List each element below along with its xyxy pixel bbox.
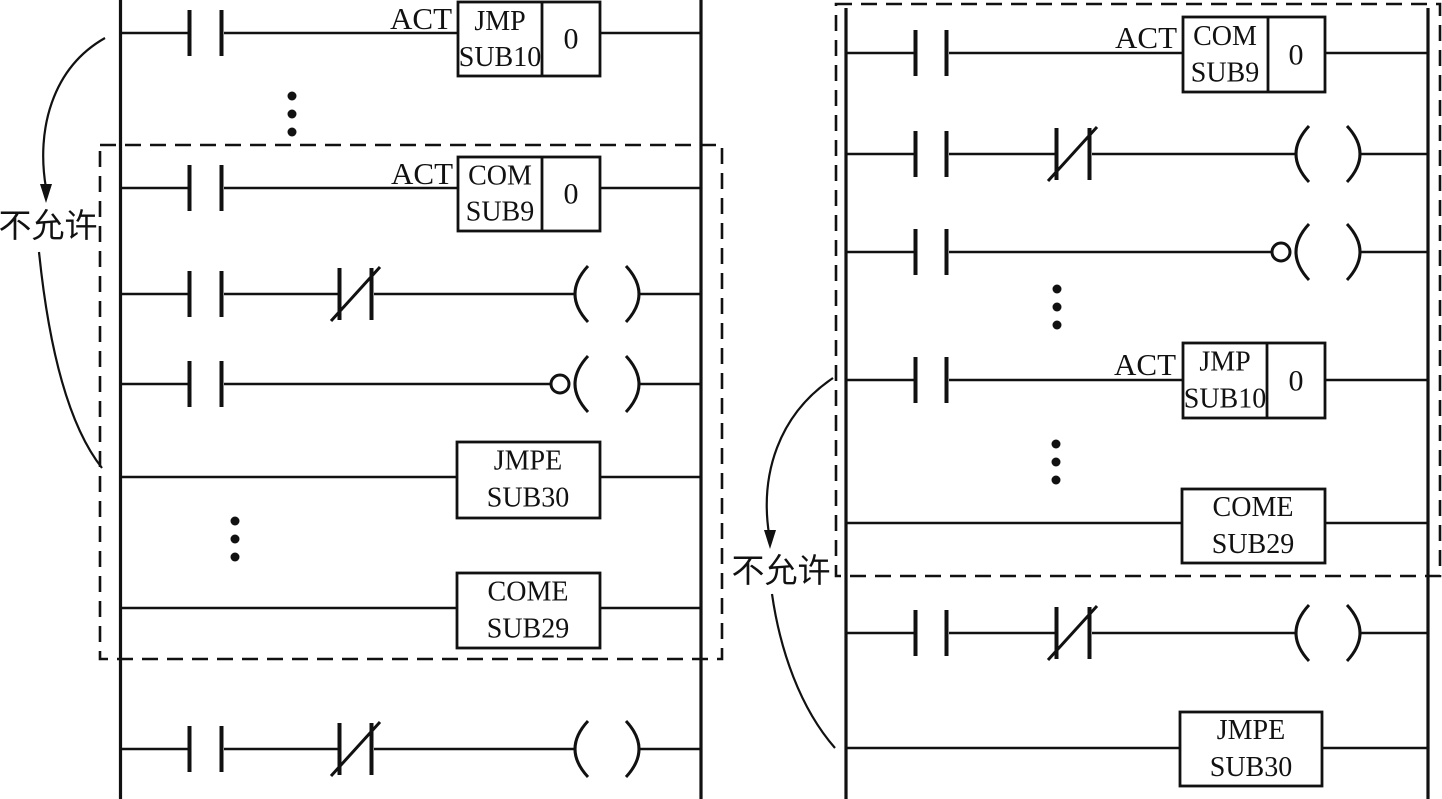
dot [1053, 321, 1062, 330]
dot [288, 110, 297, 119]
instruction-operand: SUB29 [487, 614, 569, 645]
instruction-operand: SUB9 [466, 197, 534, 228]
not-allowed-label: 不允许 [732, 553, 831, 590]
instruction-value: 0 [564, 178, 579, 211]
instruction-mnemonic: COME [488, 577, 569, 608]
coil-icon [626, 266, 639, 322]
dot [288, 128, 297, 137]
rung-come-sub29: COME SUB29 [120, 573, 701, 648]
instruction-value: 0 [564, 23, 579, 56]
instruction-value: 0 [1289, 39, 1304, 72]
dot [1052, 440, 1061, 449]
instruction-mnemonic: JMP [1199, 347, 1250, 378]
rung-jmpe-sub30: JMPE SUB30 [120, 442, 701, 518]
instruction-operand: SUB30 [1210, 752, 1292, 783]
right-ladder: ACT COM SUB9 0 [732, 4, 1441, 799]
ladder-diagram: ACT JMP SUB10 0 ACT COM SUB9 0 [0, 0, 1442, 799]
dot [1053, 285, 1062, 294]
dot [1052, 458, 1061, 467]
not-allowed-arrow-curve [43, 38, 105, 188]
dot [1053, 303, 1062, 312]
dot [1052, 476, 1061, 485]
rung-come-sub29: COME SUB29 [846, 489, 1428, 563]
dot [231, 535, 240, 544]
coil-icon [575, 721, 588, 777]
rung-output-coil-2 [846, 605, 1428, 661]
instruction-operand: SUB30 [487, 483, 569, 514]
instruction-mnemonic: JMPE [494, 446, 562, 477]
rung-jmpe-sub30: JMPE SUB30 [846, 712, 1428, 786]
dot [231, 553, 240, 562]
instruction-mnemonic: COM [1193, 21, 1257, 52]
dot [231, 517, 240, 526]
ellipsis-dots [231, 517, 240, 562]
left-ladder: ACT JMP SUB10 0 ACT COM SUB9 0 [0, 0, 722, 799]
rung-com-sub9: ACT COM SUB9 0 [120, 156, 701, 231]
not-allowed-label: 不允许 [0, 208, 98, 245]
coil-icon [1296, 126, 1309, 182]
ellipsis-dots [1053, 285, 1062, 330]
act-label: ACT [390, 1, 452, 36]
rung-jmp-sub10: ACT JMP SUB10 0 [846, 343, 1428, 418]
coil-icon [575, 266, 588, 322]
instruction-mnemonic: COME [1213, 492, 1294, 523]
arrowhead-icon [40, 184, 52, 203]
coil-icon [1296, 224, 1309, 280]
coil-icon [626, 356, 639, 412]
instruction-mnemonic: JMP [474, 6, 525, 37]
instruction-mnemonic: COM [468, 161, 532, 192]
ellipsis-dots [1052, 440, 1061, 485]
dot [288, 92, 297, 101]
instruction-value: 0 [1289, 365, 1304, 398]
negation-circle-icon [551, 375, 569, 393]
rung-output-coil-1 [120, 266, 701, 322]
not-allowed-annotation: 不允许 [0, 38, 105, 468]
coil-icon [575, 356, 588, 412]
rung-jmp-sub10: ACT JMP SUB10 0 [120, 1, 701, 76]
rung-negated-coil [120, 356, 701, 412]
rung-com-sub9: ACT COM SUB9 0 [846, 17, 1428, 92]
act-label: ACT [391, 156, 453, 191]
rung-output-coil-2 [120, 721, 701, 777]
rung-negated-coil [846, 224, 1428, 280]
arrowhead-icon [764, 530, 776, 549]
instruction-operand: SUB10 [1184, 384, 1266, 415]
coil-icon [1296, 605, 1309, 661]
coil-icon [626, 721, 639, 777]
negation-circle-icon [1272, 243, 1290, 261]
com-region-dashed-boundary [100, 145, 722, 659]
act-label: ACT [1114, 347, 1176, 382]
not-allowed-annotation: 不允许 [732, 378, 836, 748]
ladder-diagram-canvas: ACT JMP SUB10 0 ACT COM SUB9 0 [0, 0, 1442, 799]
instruction-operand: SUB9 [1191, 58, 1259, 89]
coil-icon [1347, 605, 1360, 661]
instruction-operand: SUB10 [459, 42, 541, 73]
not-allowed-arrow-curve [772, 594, 835, 748]
com-region-dashed-boundary [836, 4, 1440, 576]
instruction-operand: SUB29 [1212, 529, 1294, 560]
coil-icon [1347, 224, 1360, 280]
act-label: ACT [1115, 20, 1177, 55]
instruction-mnemonic: JMPE [1217, 715, 1285, 746]
not-allowed-arrow-curve [767, 378, 833, 534]
ellipsis-dots [288, 92, 297, 137]
rung-output-coil-1 [846, 126, 1428, 182]
coil-icon [1347, 126, 1360, 182]
not-allowed-arrow-curve [39, 252, 102, 468]
